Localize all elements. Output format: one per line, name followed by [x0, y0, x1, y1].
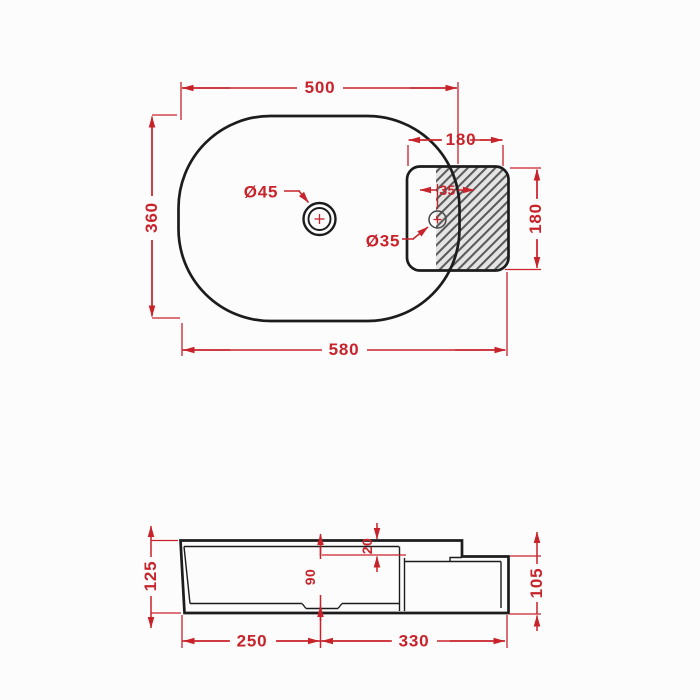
dim-bottom-rear: 330	[321, 615, 507, 651]
dim-step-height-label: 20	[359, 538, 375, 554]
faucet-hole	[304, 203, 336, 235]
dim-basin-width-label: 500	[305, 78, 336, 97]
drain-diameter-text: Ø35	[366, 232, 401, 251]
top-view: 500 180 180	[142, 78, 545, 359]
dim-bottom-front-label: 250	[237, 632, 268, 651]
profile-inner-lines	[184, 547, 501, 612]
label-drain-diameter: Ø35	[366, 227, 428, 251]
dim-drain-offset-label: 35	[439, 182, 455, 198]
profile-outline	[181, 541, 509, 614]
dim-overall-depth: 360	[142, 115, 180, 318]
dim-step-height: 20	[322, 523, 406, 572]
dim-front-height: 125	[141, 526, 181, 628]
dim-basin-width: 500	[181, 78, 458, 164]
dimension-drawing: 500 180 180	[0, 0, 700, 700]
dim-overall-depth-label: 360	[142, 202, 161, 233]
label-faucet-diameter: Ø45	[244, 183, 309, 203]
dim-rear-height: 105	[509, 532, 546, 631]
dim-overall-width: 580	[182, 272, 507, 359]
dim-bottom-front: 250	[182, 615, 320, 651]
side-view: 125 105 20 90	[141, 523, 546, 651]
dim-overall-width-label: 580	[329, 340, 360, 359]
dim-ledge-depth-label: 180	[526, 203, 545, 234]
dim-inner-depth-label: 90	[302, 569, 318, 585]
dim-bottom-rear-label: 330	[399, 632, 430, 651]
drawing-page: 500 180 180	[0, 0, 700, 700]
dim-rear-height-label: 105	[527, 568, 546, 599]
faucet-diameter-text: Ø45	[244, 183, 279, 202]
dim-ledge-width-label: 180	[446, 130, 477, 149]
dim-front-height-label: 125	[141, 561, 160, 592]
dim-ledge-depth: 180	[505, 168, 545, 270]
dim-inner-depth: 90	[302, 534, 321, 648]
